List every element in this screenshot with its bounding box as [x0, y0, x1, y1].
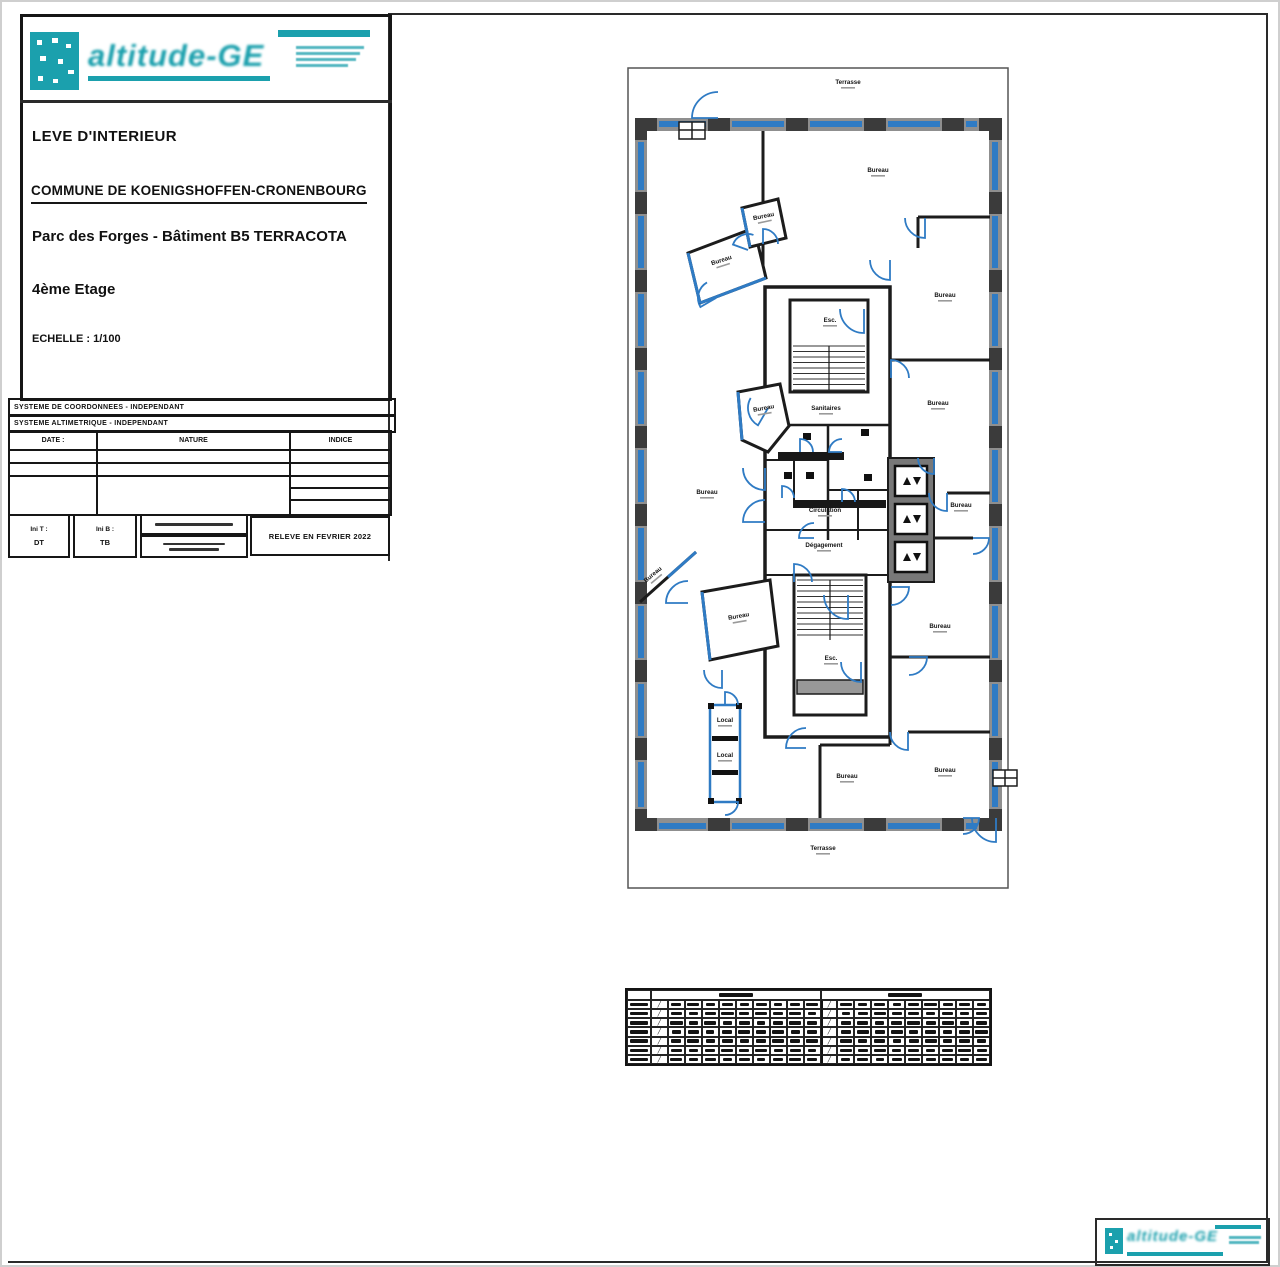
areas-table-cell	[837, 1037, 854, 1046]
areas-table-cell	[854, 1037, 871, 1046]
commune-title: COMMUNE DE KOENIGSHOFFEN-CRONENBOURG	[31, 183, 367, 204]
areas-table-cell	[627, 1027, 651, 1036]
room-area-text	[718, 725, 732, 727]
brand-address-line	[296, 46, 364, 49]
floor-plan: TerrasseBureauBureauBureauBureauEsc.Sani…	[618, 60, 1018, 895]
areas-table-cell	[668, 1009, 685, 1018]
areas-table-cell	[736, 1027, 753, 1036]
room-label: Local	[717, 752, 733, 759]
areas-table-cell	[956, 1000, 973, 1009]
room-label: Esc.	[825, 655, 838, 662]
room-area-text	[954, 510, 968, 512]
ini-t-label: Ini T :	[30, 526, 47, 533]
areas-table-cell: ╱	[821, 1018, 838, 1027]
brand-address-line	[296, 52, 360, 55]
areas-table-cell	[627, 990, 651, 1000]
brand-top-bar	[278, 30, 370, 37]
room-label: Sanitaires	[811, 405, 841, 412]
areas-table-cell	[753, 1037, 770, 1046]
ini-b-cell: Ini B : TB	[73, 514, 137, 558]
areas-table-cell	[753, 1018, 770, 1027]
door-arc	[905, 218, 925, 238]
areas-table-cell: ╱	[651, 1027, 668, 1036]
areas-table-cell	[939, 1000, 956, 1009]
door-arc	[692, 92, 718, 118]
areas-table-cell	[787, 1027, 804, 1036]
areas-table-cell	[668, 1027, 685, 1036]
door-arc	[891, 360, 909, 378]
areas-table-cell	[956, 1009, 973, 1018]
areas-table-cell	[888, 1000, 905, 1009]
areas-table-cell	[627, 1046, 651, 1055]
areas-table-cell	[888, 1027, 905, 1036]
areas-table-cell	[702, 1055, 719, 1064]
areas-table-cell	[702, 1009, 719, 1018]
areas-table-cell: ╱	[651, 1000, 668, 1009]
areas-table-cell	[702, 1018, 719, 1027]
areas-table-cell	[668, 1037, 685, 1046]
room-area-text	[718, 760, 732, 762]
floor-title: 4ème Etage	[32, 281, 115, 298]
room-label: Bureau	[927, 400, 949, 407]
areas-table-cell	[787, 1018, 804, 1027]
room-area-text	[823, 325, 837, 327]
areas-table-cell	[668, 1000, 685, 1009]
areas-table-cell	[837, 1018, 854, 1027]
areas-table-cell	[956, 1046, 973, 1055]
frame-bottom	[8, 1261, 1268, 1263]
areas-table-cell	[719, 1018, 736, 1027]
room-label: Bureau	[934, 292, 956, 299]
scale-label: ECHELLE : 1/100	[32, 333, 121, 345]
areas-table-cell	[685, 1000, 702, 1009]
room-label: Bureau	[929, 623, 951, 630]
areas-table-cell	[973, 1037, 990, 1046]
areas-table-cell: ╱	[651, 1037, 668, 1046]
areas-table-cell	[854, 1009, 871, 1018]
areas-table-cell	[702, 1046, 719, 1055]
footer-logo-box: altitude-GE	[1095, 1218, 1270, 1266]
areas-table-cell: ╱	[821, 1000, 838, 1009]
areas-table-cell	[888, 1046, 905, 1055]
revision-table: DATE : NATURE INDICE	[8, 430, 392, 516]
room-label: Circulation	[809, 507, 842, 514]
footer-logo-icon	[1105, 1228, 1123, 1254]
door-arc	[666, 581, 688, 603]
areas-table-cell	[956, 1027, 973, 1036]
door-arc	[909, 657, 927, 675]
areas-table-cell	[702, 1027, 719, 1036]
areas-table-cell	[736, 1009, 753, 1018]
areas-table-cell	[770, 1046, 787, 1055]
areas-table-cell	[702, 1000, 719, 1009]
door-arc	[891, 587, 909, 605]
areas-table-cell	[905, 1027, 922, 1036]
areas-table-cell	[651, 990, 821, 1000]
areas-table-cell	[922, 1046, 939, 1055]
brand-logo-icon	[30, 32, 79, 90]
ini-b-label: Ini B :	[96, 526, 114, 533]
areas-table-cell	[719, 1055, 736, 1064]
room-area-text	[871, 175, 885, 177]
areas-table-cell	[871, 1000, 888, 1009]
areas-table-cell	[627, 1037, 651, 1046]
room-label: Bureau	[836, 773, 858, 780]
room-area-text	[938, 300, 952, 302]
areas-table-cell	[922, 1027, 939, 1036]
areas-table-cell	[905, 1055, 922, 1064]
areas-table-cell	[905, 1000, 922, 1009]
areas-table-cell	[804, 1055, 821, 1064]
areas-table-cell	[668, 1018, 685, 1027]
areas-table-cell	[871, 1018, 888, 1027]
areas-table-cell	[753, 1027, 770, 1036]
areas-table-cell	[668, 1046, 685, 1055]
areas-table-cell	[939, 1055, 956, 1064]
areas-table-cell	[905, 1037, 922, 1046]
areas-table-cell	[770, 1055, 787, 1064]
room-area-text	[841, 87, 855, 89]
areas-table-cell	[719, 1000, 736, 1009]
areas-table-cell	[905, 1009, 922, 1018]
areas-table-cell	[837, 1027, 854, 1036]
areas-table-cell	[627, 1055, 651, 1064]
areas-table-cell	[922, 1018, 939, 1027]
revision-indice-header: INDICE	[291, 437, 390, 444]
areas-table-cell	[804, 1037, 821, 1046]
room-label: Bureau	[696, 489, 718, 496]
areas-table-cell	[837, 1055, 854, 1064]
areas-table-cell	[753, 1046, 770, 1055]
areas-table-cell	[719, 1009, 736, 1018]
areas-table-cell	[685, 1046, 702, 1055]
frame-top	[388, 13, 1268, 15]
areas-table-cell	[837, 1009, 854, 1018]
room-area-text	[824, 663, 838, 665]
areas-table-cell	[685, 1027, 702, 1036]
areas-table-cell	[627, 1009, 651, 1018]
areas-table-cell	[888, 1018, 905, 1027]
areas-table-cell	[787, 1046, 804, 1055]
areas-table-cell	[922, 1037, 939, 1046]
areas-table-cell	[905, 1018, 922, 1027]
areas-table-cell: ╱	[821, 1037, 838, 1046]
areas-table: ╱╱╱╱╱╱╱╱╱╱╱╱╱╱	[625, 988, 992, 1066]
areas-table-cell	[939, 1046, 956, 1055]
areas-table-cell	[854, 1046, 871, 1055]
room-label: Bureau	[950, 502, 972, 509]
brand-address-line	[296, 58, 356, 61]
room-label: Bureau	[867, 167, 889, 174]
areas-table-cell	[973, 1000, 990, 1009]
areas-table-cell	[939, 1009, 956, 1018]
areas-table-cell	[837, 1046, 854, 1055]
room-area-text	[816, 853, 830, 855]
areas-table-cell	[973, 1027, 990, 1036]
areas-table-cell	[736, 1037, 753, 1046]
areas-table-cell	[939, 1018, 956, 1027]
areas-table-cell: ╱	[651, 1009, 668, 1018]
areas-table-cell	[854, 1027, 871, 1036]
areas-table-cell	[922, 1009, 939, 1018]
areas-table-cell	[956, 1055, 973, 1064]
areas-table-cell	[787, 1055, 804, 1064]
areas-table-cell	[888, 1055, 905, 1064]
areas-table-cell	[956, 1018, 973, 1027]
areas-table-cell	[888, 1009, 905, 1018]
door-arc	[704, 670, 722, 688]
areas-table-cell: ╱	[651, 1055, 668, 1064]
areas-table-cell	[922, 1055, 939, 1064]
areas-table-cell	[736, 1000, 753, 1009]
brand-address-line	[296, 64, 348, 67]
ini-t-cell: Ini T : DT	[8, 514, 70, 558]
room-area-text	[931, 408, 945, 410]
room-area-text	[840, 781, 854, 783]
drawing-sheet: { "colors": { "accent_teal": "#1ba0ad", …	[0, 0, 1280, 1267]
areas-table-cell	[668, 1055, 685, 1064]
areas-table-cell: ╱	[821, 1046, 838, 1055]
room-area-text	[938, 775, 952, 777]
altimetric-system-label: SYSTEME ALTIMETRIQUE - INDEPENDANT	[14, 420, 168, 427]
areas-table-cell	[922, 1000, 939, 1009]
contact-cell-top	[140, 514, 248, 535]
areas-table-cell	[685, 1037, 702, 1046]
areas-table-cell	[787, 1009, 804, 1018]
areas-table-cell	[702, 1037, 719, 1046]
room-area-text	[700, 497, 714, 499]
areas-table-cell	[871, 1027, 888, 1036]
room-area-text	[933, 631, 947, 633]
areas-table-cell	[854, 1018, 871, 1027]
coordinate-system-label: SYSTEME DE COORDONNEES - INDEPENDANT	[14, 404, 184, 411]
areas-table-cell	[804, 1000, 821, 1009]
areas-table-cell	[973, 1018, 990, 1027]
areas-table-cell	[973, 1055, 990, 1064]
areas-table-cell: ╱	[651, 1046, 668, 1055]
areas-table-cell	[719, 1037, 736, 1046]
frame-right	[1266, 13, 1268, 1262]
areas-table-cell	[804, 1018, 821, 1027]
areas-table-cell	[939, 1027, 956, 1036]
areas-table-cell	[719, 1046, 736, 1055]
door-arc	[743, 500, 765, 522]
areas-table-cell	[973, 1009, 990, 1018]
areas-table-cell	[770, 1018, 787, 1027]
room-label: Esc.	[824, 317, 837, 324]
room-area-text	[818, 515, 832, 517]
areas-table-cell: ╱	[821, 1055, 838, 1064]
areas-table-cell	[770, 1037, 787, 1046]
areas-table-cell	[685, 1055, 702, 1064]
areas-table-cell	[736, 1046, 753, 1055]
footer-logo-wordmark: altitude-GE	[1127, 1228, 1218, 1245]
areas-table-cell	[871, 1046, 888, 1055]
areas-table-cell	[685, 1018, 702, 1027]
areas-table-cell	[871, 1037, 888, 1046]
areas-table-cell: ╱	[821, 1009, 838, 1018]
survey-date-cell: RELEVE EN FEVRIER 2022	[250, 516, 390, 556]
areas-table-cell	[871, 1055, 888, 1064]
areas-table-cell	[736, 1055, 753, 1064]
title-block-divider	[20, 100, 392, 103]
areas-table-cell: ╱	[821, 1027, 838, 1036]
areas-table-cell	[905, 1046, 922, 1055]
areas-table-cell	[854, 1055, 871, 1064]
door-arc	[743, 468, 765, 490]
door-arc	[973, 538, 989, 554]
ini-b-value: TB	[100, 538, 110, 547]
room-label: Terrasse	[835, 79, 861, 86]
areas-table-cell	[804, 1046, 821, 1055]
areas-table-cell	[787, 1037, 804, 1046]
room-label: Dégagement	[805, 542, 842, 549]
areas-table-cell	[804, 1027, 821, 1036]
areas-table-cell	[753, 1000, 770, 1009]
project-title: Parc des Forges - Bâtiment B5 TERRACOTA	[32, 228, 347, 245]
areas-table-cell	[956, 1037, 973, 1046]
areas-table-cell	[753, 1009, 770, 1018]
areas-table-cell	[804, 1009, 821, 1018]
areas-table-cell	[770, 1000, 787, 1009]
areas-table-cell	[685, 1009, 702, 1018]
door-arc	[870, 260, 890, 280]
areas-table-cell	[973, 1046, 990, 1055]
areas-table-cell: ╱	[651, 1018, 668, 1027]
areas-table-cell	[736, 1018, 753, 1027]
areas-table-cell	[627, 1000, 651, 1009]
door-arc	[890, 732, 908, 750]
areas-table-cell	[787, 1000, 804, 1009]
areas-table-cell	[854, 1000, 871, 1009]
areas-table-cell	[821, 990, 991, 1000]
contact-cell-bottom	[140, 535, 248, 558]
areas-table-cell	[888, 1037, 905, 1046]
room-area-text	[817, 550, 831, 552]
areas-table-cell	[753, 1055, 770, 1064]
areas-table-cell	[627, 1018, 651, 1027]
areas-table-cell	[837, 1000, 854, 1009]
room-label: Bureau	[934, 767, 956, 774]
revision-date-header: DATE :	[10, 437, 96, 444]
room-label: Local	[717, 717, 733, 724]
areas-table-cell	[770, 1009, 787, 1018]
survey-date-label: RELEVE EN FEVRIER 2022	[269, 532, 371, 541]
areas-table-cell	[770, 1027, 787, 1036]
doc-type-title: LEVE D'INTERIEUR	[32, 128, 177, 145]
room-area-text	[819, 413, 833, 415]
room-label: Terrasse	[810, 845, 836, 852]
ini-t-value: DT	[34, 538, 44, 547]
brand-underline-bar	[88, 76, 270, 81]
brand-wordmark: altitude-GE	[88, 38, 264, 74]
areas-table-cell	[871, 1009, 888, 1018]
areas-table-cell	[719, 1027, 736, 1036]
revision-nature-header: NATURE	[98, 437, 289, 444]
areas-table-cell	[939, 1037, 956, 1046]
